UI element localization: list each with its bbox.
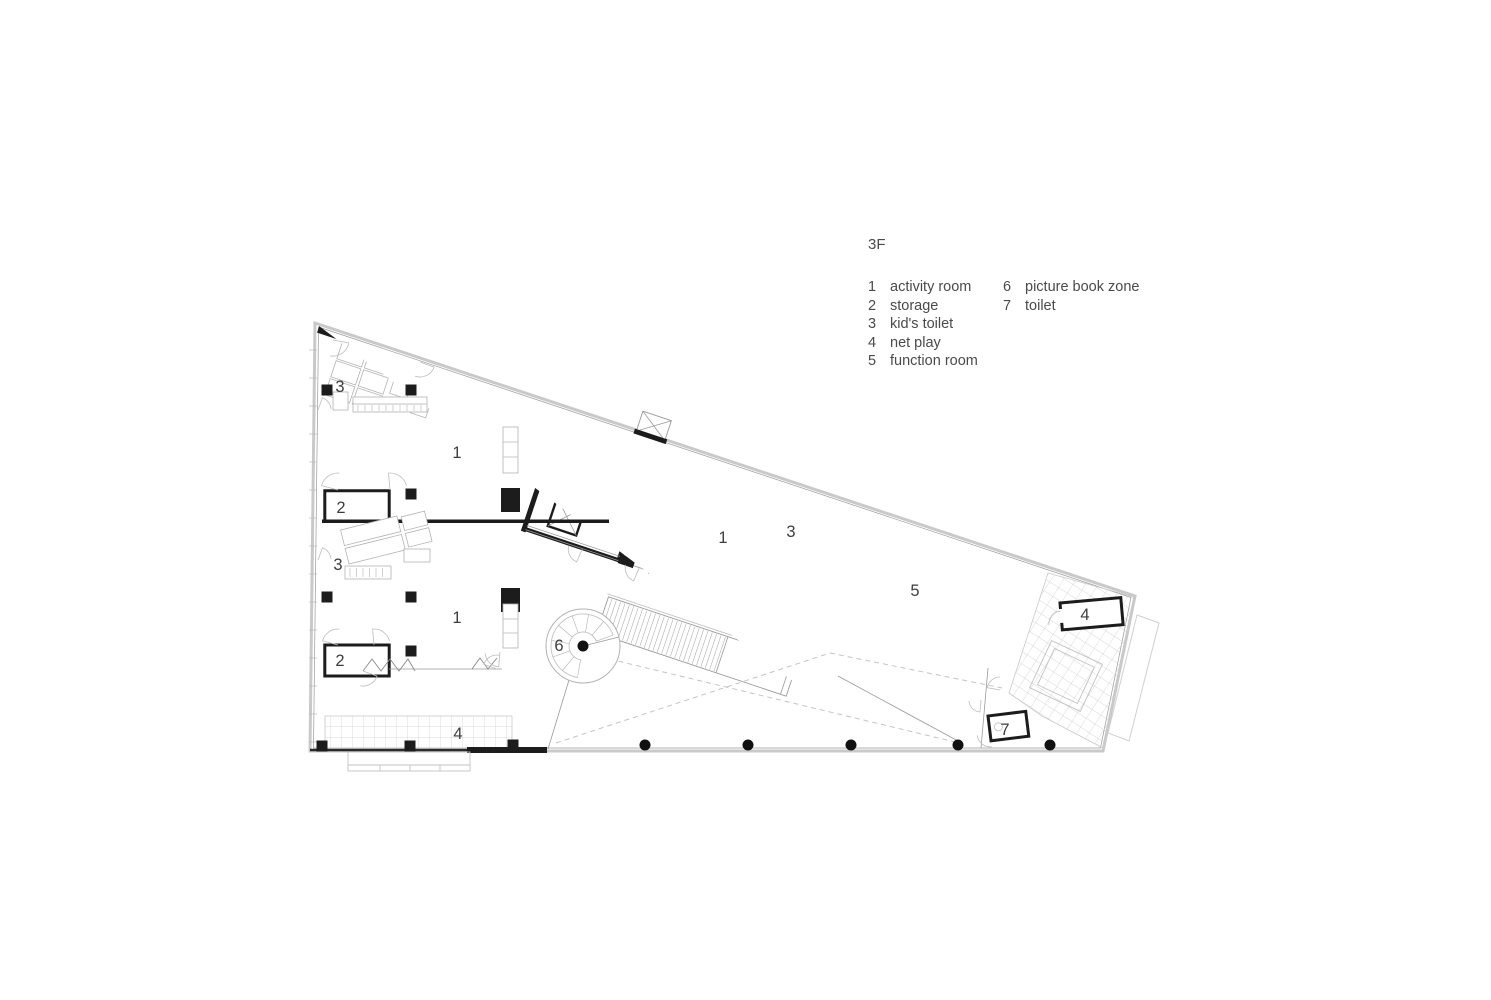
legend-item: 7toilet [1003,297,1139,316]
room-number-label: 7 [1000,721,1009,739]
round-column [743,740,754,751]
legend-item-number: 1 [868,278,890,297]
legend-item-number: 2 [868,297,890,316]
legend-item-label: net play [890,334,941,353]
legend-item-label: kid's toilet [890,315,953,334]
legend-item-number: 4 [868,334,890,353]
spiral-center-column [578,641,589,652]
plan-title: 3F [868,236,1198,253]
round-column [1045,740,1056,751]
round-column [846,740,857,751]
structural-column [322,592,333,603]
legend-item-label: activity room [890,278,971,297]
room-number-label: 3 [333,556,342,574]
legend-item-number: 6 [1003,278,1025,297]
room-number-label: 4 [453,725,462,743]
legend-item-label: picture book zone [1025,278,1139,297]
room-number-label: 4 [1080,606,1089,624]
net-play-grid-strip [325,716,512,748]
round-column [953,740,964,751]
floor-plan-drawing: 3123124135467 [0,0,1491,1000]
floor-plan-page: { "title": "3F", "legend": { "column1": … [0,0,1491,1000]
room-number-label: 2 [335,652,344,670]
room-number-label: 1 [452,444,461,462]
structural-column [406,592,417,603]
legend-item: 5function room [868,352,1003,371]
room-number-label: 3 [335,378,344,396]
structural-column [508,740,519,751]
room-number-label: 6 [554,637,563,655]
structural-column [406,646,417,657]
legend-item: 2storage [868,297,1003,316]
legend-item-number: 7 [1003,297,1025,316]
room-number-label: 1 [452,609,461,627]
room-number-label: 1 [718,529,727,547]
structural-column [405,741,416,752]
legend-item-number: 3 [868,315,890,334]
legend: 3F 1activity room 2storage 3kid's toilet… [868,236,1198,371]
room-number-label: 2 [336,499,345,517]
legend-column-2: 6picture book zone 7toilet [1003,278,1139,371]
balcony [348,752,470,771]
room-number-label: 5 [910,582,919,600]
structural-column [317,741,328,752]
legend-item-label: storage [890,297,938,316]
legend-column-1: 1activity room 2storage 3kid's toilet 4n… [868,278,1003,371]
legend-item-number: 5 [868,352,890,371]
legend-item: 3kid's toilet [868,315,1003,334]
bottom-edge [310,747,547,771]
legend-item: 6picture book zone [1003,278,1139,297]
legend-item: 4net play [868,334,1003,353]
room-number-label: 3 [786,523,795,541]
legend-item-label: toilet [1025,297,1056,316]
structural-column [406,385,417,396]
legend-item-label: function room [890,352,978,371]
structural-column [406,489,417,500]
round-column [640,740,651,751]
legend-item: 1activity room [868,278,1003,297]
structural-column [322,385,333,396]
